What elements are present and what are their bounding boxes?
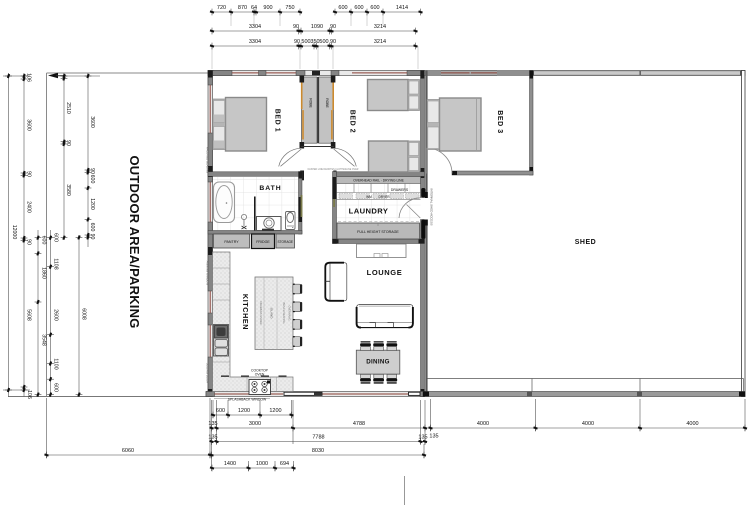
svg-text:500: 500 — [301, 39, 310, 45]
svg-text:ROBE: ROBE — [309, 98, 313, 108]
svg-text:1100: 1100 — [53, 358, 59, 369]
svg-text:OVEN: OVEN — [255, 373, 265, 377]
svg-text:1090: 1090 — [311, 24, 323, 30]
svg-text:BED 2: BED 2 — [349, 110, 356, 134]
svg-text:600: 600 — [53, 233, 59, 242]
svg-text:600: 600 — [216, 408, 225, 414]
svg-text:12000: 12000 — [11, 225, 17, 240]
svg-text:3214: 3214 — [374, 39, 386, 45]
svg-text:1108: 1108 — [53, 258, 59, 269]
svg-text:90: 90 — [26, 171, 32, 177]
svg-text:1000: 1000 — [256, 461, 268, 467]
svg-text:3600: 3600 — [26, 119, 32, 131]
svg-text:90: 90 — [89, 234, 95, 240]
svg-text:750: 750 — [285, 5, 294, 11]
svg-text:3304: 3304 — [249, 39, 261, 45]
svg-text:90: 90 — [293, 24, 299, 30]
svg-text:500: 500 — [319, 39, 328, 45]
svg-text:64: 64 — [251, 5, 257, 11]
svg-text:600: 600 — [89, 223, 95, 232]
svg-text:600: 600 — [41, 236, 47, 245]
svg-text:BATH: BATH — [259, 185, 281, 192]
svg-text:ISLAND: ISLAND — [270, 308, 274, 320]
svg-text:OUTDOOR AREA/PARKING: OUTDOOR AREA/PARKING — [127, 156, 142, 329]
svg-text:3548: 3548 — [41, 334, 47, 346]
svg-text:90: 90 — [330, 39, 336, 45]
svg-text:870: 870 — [238, 5, 247, 11]
svg-text:3304: 3304 — [249, 24, 261, 30]
svg-text:BENCH SEATING: BENCH SEATING — [282, 303, 286, 324]
svg-text:DASHED LINE DENOTES CLOTHESLIN: DASHED LINE DENOTES CLOTHESLINE OVER — [308, 168, 359, 171]
svg-text:1200: 1200 — [89, 198, 95, 210]
svg-text:900: 900 — [263, 5, 272, 11]
svg-text:106: 106 — [26, 73, 32, 82]
svg-text:90: 90 — [294, 39, 300, 45]
svg-text:WM: WM — [366, 195, 372, 199]
svg-text:FROSTED GLAZING: FROSTED GLAZING — [205, 147, 209, 173]
svg-text:90: 90 — [89, 168, 95, 174]
svg-text:5608: 5608 — [26, 309, 32, 321]
svg-text:600: 600 — [53, 383, 59, 392]
svg-text:DINING: DINING — [366, 358, 389, 365]
svg-text:135: 135 — [208, 435, 217, 441]
svg-text:STORAGE: STORAGE — [278, 240, 294, 244]
svg-text:90: 90 — [65, 140, 71, 146]
svg-text:6060: 6060 — [122, 448, 134, 454]
svg-text:6008: 6008 — [81, 308, 87, 320]
svg-text:SLIDING DOOR: SLIDING DOOR — [205, 363, 209, 383]
svg-text:OVERHANG: OVERHANG — [288, 306, 292, 321]
svg-text:135: 135 — [429, 434, 438, 440]
svg-text:694: 694 — [280, 461, 289, 467]
svg-text:720: 720 — [217, 5, 226, 11]
svg-text:4000: 4000 — [582, 421, 594, 427]
svg-text:600: 600 — [370, 5, 379, 11]
svg-text:106: 106 — [26, 390, 32, 399]
svg-text:2600: 2600 — [53, 309, 59, 321]
svg-text:1400: 1400 — [224, 461, 236, 467]
svg-text:350: 350 — [310, 39, 319, 45]
svg-text:3214: 3214 — [374, 24, 386, 30]
svg-text:3600: 3600 — [89, 116, 95, 128]
svg-text:LOUNGE: LOUNGE — [367, 268, 403, 277]
svg-text:1860: 1860 — [41, 267, 47, 279]
svg-text:135: 135 — [208, 421, 217, 427]
svg-text:SHED: SHED — [575, 239, 596, 246]
svg-text:1200: 1200 — [269, 408, 281, 414]
svg-text:2510: 2510 — [65, 102, 71, 114]
svg-text:2400: 2400 — [26, 201, 32, 213]
svg-text:90: 90 — [330, 24, 336, 30]
svg-text:DRAWERS: DRAWERS — [391, 188, 409, 192]
svg-text:4788: 4788 — [353, 421, 365, 427]
svg-text:600: 600 — [354, 5, 363, 11]
svg-text:7788: 7788 — [312, 435, 324, 441]
svg-text:1414: 1414 — [396, 5, 408, 11]
svg-text:600: 600 — [89, 175, 95, 184]
svg-text:PANTRY: PANTRY — [224, 240, 239, 244]
svg-text:135: 135 — [418, 435, 427, 441]
svg-text:DRYER: DRYER — [378, 195, 390, 199]
svg-text:OVERHEAD RAIL · DRYING LINE: OVERHEAD RAIL · DRYING LINE — [353, 179, 404, 183]
svg-text:90: 90 — [26, 239, 32, 245]
svg-text:AWNING WINDOW: AWNING WINDOW — [205, 261, 209, 286]
svg-text:KITCHEN: KITCHEN — [241, 294, 250, 330]
svg-text:4000: 4000 — [686, 421, 698, 427]
svg-text:3000: 3000 — [249, 421, 261, 427]
svg-text:FULL HEIGHT STORAGE: FULL HEIGHT STORAGE — [357, 230, 399, 234]
svg-text:LAUNDRY: LAUNDRY — [349, 207, 389, 216]
svg-text:BED 3: BED 3 — [496, 110, 503, 134]
svg-text:SPLASHBACK WINDOW: SPLASHBACK WINDOW — [228, 398, 267, 402]
svg-text:BED 1: BED 1 — [274, 109, 281, 133]
svg-text:1200: 1200 — [238, 408, 250, 414]
svg-text:FRIDGE: FRIDGE — [256, 240, 270, 244]
svg-text:ROBE: ROBE — [325, 98, 329, 108]
svg-text:INTERNAL SHED ACCESS: INTERNAL SHED ACCESS — [430, 189, 434, 226]
svg-text:600: 600 — [338, 5, 347, 11]
svg-text:4000: 4000 — [477, 421, 489, 427]
svg-text:DRAWERS UNDER: DRAWERS UNDER — [259, 301, 263, 324]
svg-text:8030: 8030 — [312, 448, 324, 454]
svg-text:3580: 3580 — [65, 184, 71, 196]
